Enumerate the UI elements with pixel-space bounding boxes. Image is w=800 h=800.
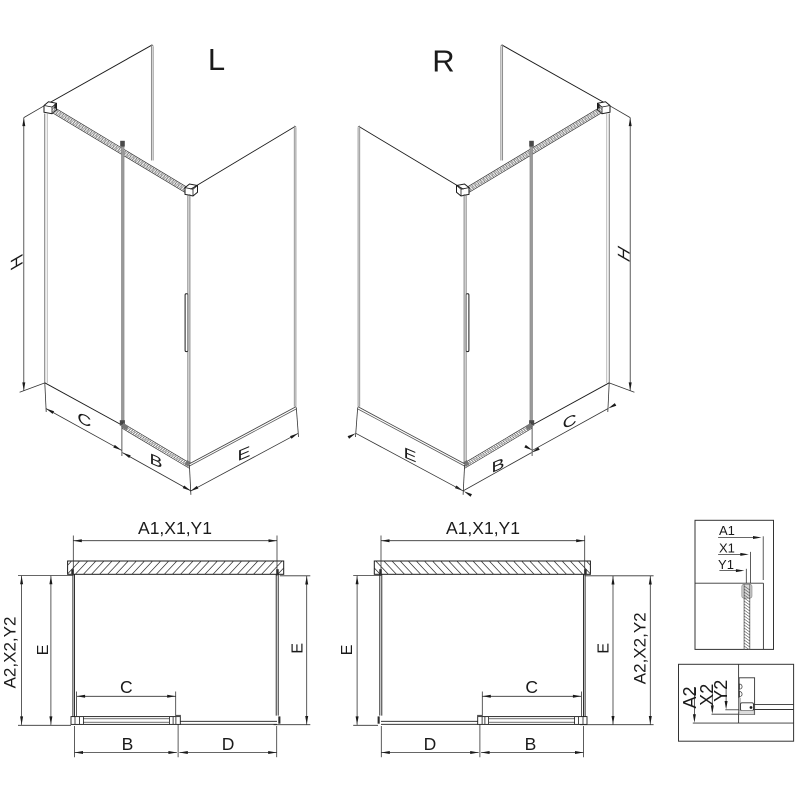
svg-text:D: D bbox=[222, 734, 235, 754]
svg-text:A2,X2,Y2: A2,X2,Y2 bbox=[630, 612, 649, 684]
svg-text:A1: A1 bbox=[719, 523, 735, 538]
svg-text:B: B bbox=[122, 734, 134, 754]
svg-text:A1,X1,Y1: A1,X1,Y1 bbox=[138, 518, 212, 538]
svg-text:L: L bbox=[208, 42, 225, 77]
svg-text:E: E bbox=[289, 643, 306, 654]
svg-text:A1,X1,Y1: A1,X1,Y1 bbox=[446, 518, 520, 538]
svg-text:R: R bbox=[432, 44, 454, 79]
svg-text:Y2: Y2 bbox=[711, 680, 731, 702]
svg-text:E: E bbox=[339, 645, 356, 656]
svg-text:Y1: Y1 bbox=[718, 557, 734, 572]
svg-text:E: E bbox=[596, 643, 613, 654]
svg-text:D: D bbox=[424, 734, 437, 754]
svg-text:E: E bbox=[35, 645, 52, 656]
svg-text:B: B bbox=[525, 734, 537, 754]
svg-text:C: C bbox=[525, 677, 538, 697]
svg-text:X1: X1 bbox=[719, 541, 735, 556]
svg-text:C: C bbox=[120, 677, 133, 697]
svg-text:A2,X2,Y2: A2,X2,Y2 bbox=[0, 617, 19, 689]
